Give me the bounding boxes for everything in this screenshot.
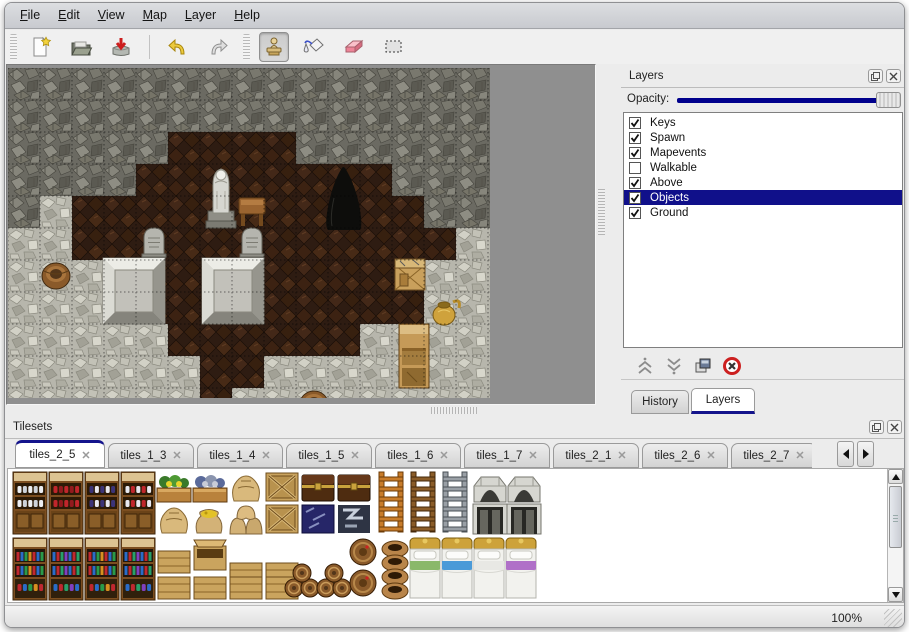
opacity-slider-track[interactable] xyxy=(677,98,899,103)
palette-tile[interactable] xyxy=(473,504,507,534)
tileset-tab-label: tiles_2_7 xyxy=(743,450,789,462)
raise-layer-icon xyxy=(635,356,655,376)
palette-tile[interactable] xyxy=(338,505,370,533)
layer-visibility-checkbox[interactable] xyxy=(629,207,641,219)
stamp-button[interactable] xyxy=(259,32,289,62)
check-icon xyxy=(630,148,640,158)
resize-grip[interactable] xyxy=(884,609,902,627)
tileset-tab-tiles_1_4[interactable]: tiles_1_4✕ xyxy=(197,443,283,468)
menu-map[interactable]: Map xyxy=(134,3,176,28)
palette-tile[interactable] xyxy=(350,539,376,596)
check-icon xyxy=(630,118,640,128)
layer-row-spawn[interactable]: Spawn xyxy=(624,130,902,145)
palette-tile[interactable] xyxy=(158,551,190,573)
undo-button[interactable] xyxy=(163,32,193,62)
check-icon xyxy=(630,133,640,143)
layers-panel-title: Layers xyxy=(629,70,664,82)
tab-close-icon[interactable]: ✕ xyxy=(350,449,359,462)
menu-help[interactable]: Help xyxy=(225,3,269,28)
tilesets-panel-title: Tilesets xyxy=(13,421,52,433)
palette-tile[interactable] xyxy=(193,475,227,502)
check-icon xyxy=(630,178,640,188)
delete-layer-icon xyxy=(722,356,742,376)
palette-tile[interactable] xyxy=(13,538,47,600)
layer-row-above[interactable]: Above xyxy=(624,175,902,190)
delete-layer-button[interactable] xyxy=(720,354,744,378)
lower-layer-icon xyxy=(664,356,684,376)
arrow-down-icon xyxy=(892,592,900,598)
palette-scrollbar[interactable] xyxy=(887,469,903,602)
tab-close-icon[interactable]: ✕ xyxy=(617,449,626,462)
layer-name: Objects xyxy=(650,192,689,204)
tileset-tab-tiles_2_5[interactable]: tiles_2_5✕ xyxy=(15,440,105,468)
layer-name: Above xyxy=(650,177,683,189)
tileset-tab-label: tiles_1_6 xyxy=(387,450,433,462)
raise-layer-button[interactable] xyxy=(633,354,657,378)
tilesets-panel-titlebar: Tilesets xyxy=(5,417,905,439)
tab-close-icon[interactable]: ✕ xyxy=(795,449,804,462)
palette-tile[interactable] xyxy=(121,472,155,534)
new-file-button[interactable] xyxy=(26,32,56,62)
open-button[interactable] xyxy=(66,32,96,62)
palette-tile[interactable] xyxy=(233,476,260,501)
select-rect-button[interactable] xyxy=(379,32,409,62)
save-icon xyxy=(109,35,133,59)
palette-tile[interactable] xyxy=(506,538,536,598)
scrollbar-thumb[interactable] xyxy=(889,486,902,548)
scroll-down-button[interactable] xyxy=(888,587,903,602)
palette-tile[interactable] xyxy=(230,506,262,534)
palette-tile[interactable] xyxy=(194,540,226,570)
menu-file[interactable]: File xyxy=(11,3,49,28)
layer-visibility-checkbox[interactable] xyxy=(629,132,641,144)
tileset-tab-label: tiles_2_6 xyxy=(654,450,700,462)
eraser-tool-icon xyxy=(342,35,366,59)
palette-tile[interactable] xyxy=(49,538,83,600)
float-icon xyxy=(871,422,882,433)
palette-tile[interactable] xyxy=(266,505,298,533)
tab-close-icon[interactable]: ✕ xyxy=(706,449,715,462)
palette-tile[interactable] xyxy=(507,504,541,534)
layer-row-mapevents[interactable]: Mapevents xyxy=(624,145,902,160)
layer-visibility-checkbox[interactable] xyxy=(629,177,641,189)
layer-row-walkable[interactable]: Walkable xyxy=(624,160,902,175)
palette-tile[interactable] xyxy=(266,473,298,501)
palette-tile[interactable] xyxy=(317,564,351,597)
eraser-button[interactable] xyxy=(339,32,369,62)
layer-row-ground[interactable]: Ground xyxy=(624,205,902,220)
float-icon xyxy=(870,71,881,82)
palette-tile[interactable] xyxy=(85,538,119,600)
tab-scroll-right-button[interactable] xyxy=(857,441,874,467)
palette-tile[interactable] xyxy=(13,472,47,534)
layers-panel: Layers Opacity: KeysSpawnMapeventsWalkab… xyxy=(621,66,905,414)
tileset-tab-label: tiles_1_4 xyxy=(209,450,255,462)
palette-tile[interactable] xyxy=(85,472,119,534)
palette-tile[interactable] xyxy=(507,472,541,502)
scroll-up-button[interactable] xyxy=(888,469,903,484)
tab-close-icon[interactable]: ✕ xyxy=(528,449,537,462)
tileset-tab-label: tiles_1_5 xyxy=(298,450,344,462)
palette-tile[interactable] xyxy=(382,541,408,599)
layers-panel-titlebar: Layers xyxy=(621,66,905,88)
dock-tab-layers[interactable]: Layers xyxy=(691,388,755,414)
palette-tile[interactable] xyxy=(121,538,155,600)
tilesets-panel: Tilesets tiles_2_5✕tiles_1_3✕tiles_1_4✕t… xyxy=(5,417,905,605)
redo-button[interactable] xyxy=(203,32,233,62)
palette-tile[interactable] xyxy=(474,538,504,598)
layer-name: Walkable xyxy=(650,162,697,174)
menu-layer[interactable]: Layer xyxy=(176,3,225,28)
arrow-up-icon xyxy=(892,474,900,480)
save-button[interactable] xyxy=(106,32,136,62)
dock-tab-history[interactable]: History xyxy=(631,390,689,414)
layer-visibility-checkbox[interactable] xyxy=(629,147,641,159)
close-panel-button[interactable] xyxy=(886,69,901,83)
palette-tile[interactable] xyxy=(230,577,262,599)
palette-tile[interactable] xyxy=(157,475,191,502)
palette-tile[interactable] xyxy=(196,510,222,534)
tileset-palette[interactable] xyxy=(7,468,904,603)
duplicate-layer-button[interactable] xyxy=(691,354,715,378)
duplicate-layer-icon xyxy=(693,356,713,376)
tileset-tabbar: tiles_2_5✕tiles_1_3✕tiles_1_4✕tiles_1_5✕… xyxy=(15,440,812,468)
vertical-splitter-grip[interactable] xyxy=(598,189,605,235)
tab-close-icon[interactable]: ✕ xyxy=(439,449,448,462)
layer-list: KeysSpawnMapeventsWalkableAboveObjectsGr… xyxy=(623,112,903,348)
tileset-tab-tiles_1_6[interactable]: tiles_1_6✕ xyxy=(375,443,461,468)
layer-name: Keys xyxy=(650,117,676,129)
palette-tile[interactable] xyxy=(379,472,403,532)
layer-visibility-checkbox[interactable] xyxy=(629,117,641,129)
arrow-right-icon xyxy=(862,449,870,459)
close-icon xyxy=(889,72,898,81)
tileset-tab-tiles_2_6[interactable]: tiles_2_6✕ xyxy=(642,443,728,468)
float-panel-button[interactable] xyxy=(869,420,884,434)
toolbar-handle[interactable] xyxy=(243,34,250,60)
layer-row-objects[interactable]: Objects xyxy=(624,190,902,205)
check-icon xyxy=(630,193,640,203)
tileset-tab-tiles_1_7[interactable]: tiles_1_7✕ xyxy=(464,443,550,468)
check-icon xyxy=(630,208,640,218)
close-panel-button[interactable] xyxy=(887,420,902,434)
palette-tile[interactable] xyxy=(302,475,334,501)
toolbar-separator xyxy=(149,35,150,59)
menu-edit[interactable]: Edit xyxy=(49,3,89,28)
menu-view[interactable]: View xyxy=(89,3,134,28)
close-icon xyxy=(890,423,899,432)
palette-tile[interactable] xyxy=(443,472,467,532)
menu-bar: FileEditViewMapLayerHelp xyxy=(5,3,904,29)
open-folder-icon xyxy=(69,35,93,59)
tileset-tab-label: tiles_1_7 xyxy=(476,450,522,462)
layer-name: Spawn xyxy=(650,132,685,144)
tileset-tab-label: tiles_2_1 xyxy=(565,450,611,462)
tileset-tab-tiles_1_3[interactable]: tiles_1_3✕ xyxy=(108,443,194,468)
select-rect-tool-icon xyxy=(382,35,406,59)
palette-tile[interactable] xyxy=(194,577,226,599)
palette-tile[interactable] xyxy=(302,505,334,533)
palette-tile[interactable] xyxy=(338,475,370,501)
layer-name: Mapevents xyxy=(650,147,706,159)
toolbar-handle[interactable] xyxy=(10,34,17,60)
palette-tile[interactable] xyxy=(161,508,188,533)
palette-tile[interactable] xyxy=(442,538,472,598)
palette-tile[interactable] xyxy=(410,538,440,598)
tileset-tab-label: tiles_1_3 xyxy=(120,450,166,462)
layer-row-keys[interactable]: Keys xyxy=(624,115,902,130)
palette-tile[interactable] xyxy=(411,472,435,532)
float-panel-button[interactable] xyxy=(868,69,883,83)
horizontal-splitter-grip[interactable] xyxy=(431,407,477,414)
new-file-icon xyxy=(29,35,53,59)
dock-tabbar: HistoryLayers xyxy=(621,384,905,414)
lower-layer-button[interactable] xyxy=(662,354,686,378)
palette-tile[interactable] xyxy=(473,472,507,502)
tileset-tab-tiles_2_1[interactable]: tiles_2_1✕ xyxy=(553,443,639,468)
opacity-label: Opacity: xyxy=(627,93,669,105)
fill-button[interactable] xyxy=(299,32,329,62)
tileset-tab-label: tiles_2_5 xyxy=(29,449,75,461)
palette-render xyxy=(10,470,890,602)
app-window: FileEditViewMapLayerHelp Layers Opacity:… xyxy=(4,2,905,628)
palette-tile[interactable] xyxy=(158,577,190,599)
layer-visibility-checkbox[interactable] xyxy=(629,192,641,204)
opacity-row: Opacity: xyxy=(621,90,905,110)
palette-tile[interactable] xyxy=(49,472,83,534)
tab-scroll-left-button[interactable] xyxy=(837,441,854,467)
layer-name: Ground xyxy=(650,207,688,219)
tab-close-icon[interactable]: ✕ xyxy=(81,449,90,462)
tab-close-icon[interactable]: ✕ xyxy=(172,449,181,462)
undo-icon xyxy=(166,35,190,59)
layer-visibility-checkbox[interactable] xyxy=(629,162,641,174)
map-canvas[interactable] xyxy=(6,64,596,405)
toolbar xyxy=(5,30,904,64)
map-render xyxy=(8,68,490,398)
fill-tool-icon xyxy=(302,35,326,59)
stamp-tool-icon xyxy=(262,35,286,59)
layer-buttons xyxy=(621,352,905,380)
opacity-slider-handle[interactable] xyxy=(876,92,901,108)
status-bar: 100% xyxy=(5,605,904,628)
arrow-left-icon xyxy=(842,449,850,459)
redo-icon xyxy=(206,35,230,59)
zoom-level: 100% xyxy=(831,611,862,625)
tab-close-icon[interactable]: ✕ xyxy=(261,449,270,462)
tileset-tab-tiles_2_7[interactable]: tiles_2_7✕ xyxy=(731,443,812,468)
tileset-tab-tiles_1_5[interactable]: tiles_1_5✕ xyxy=(286,443,372,468)
